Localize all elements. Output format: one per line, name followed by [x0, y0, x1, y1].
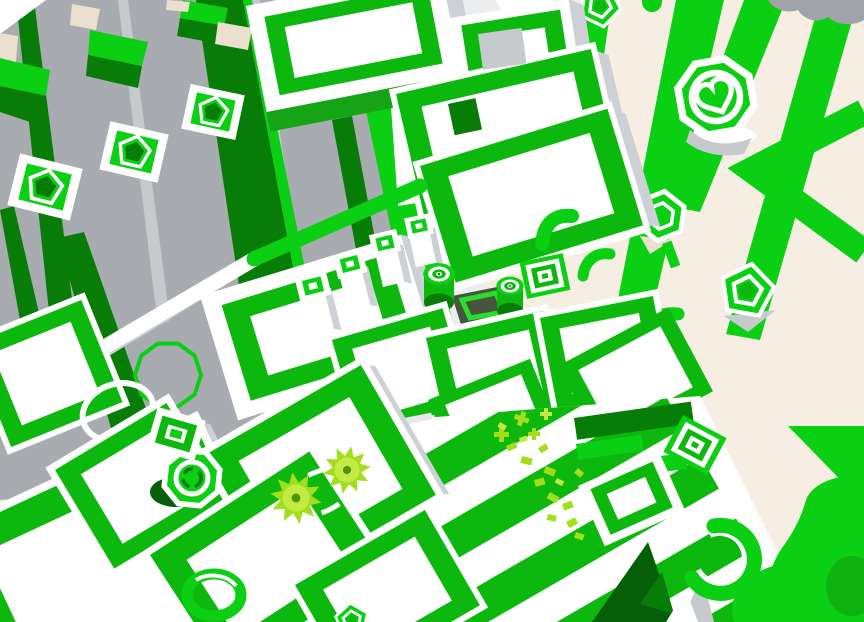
game-scene [0, 0, 864, 622]
game-viewport[interactable] [0, 0, 864, 622]
